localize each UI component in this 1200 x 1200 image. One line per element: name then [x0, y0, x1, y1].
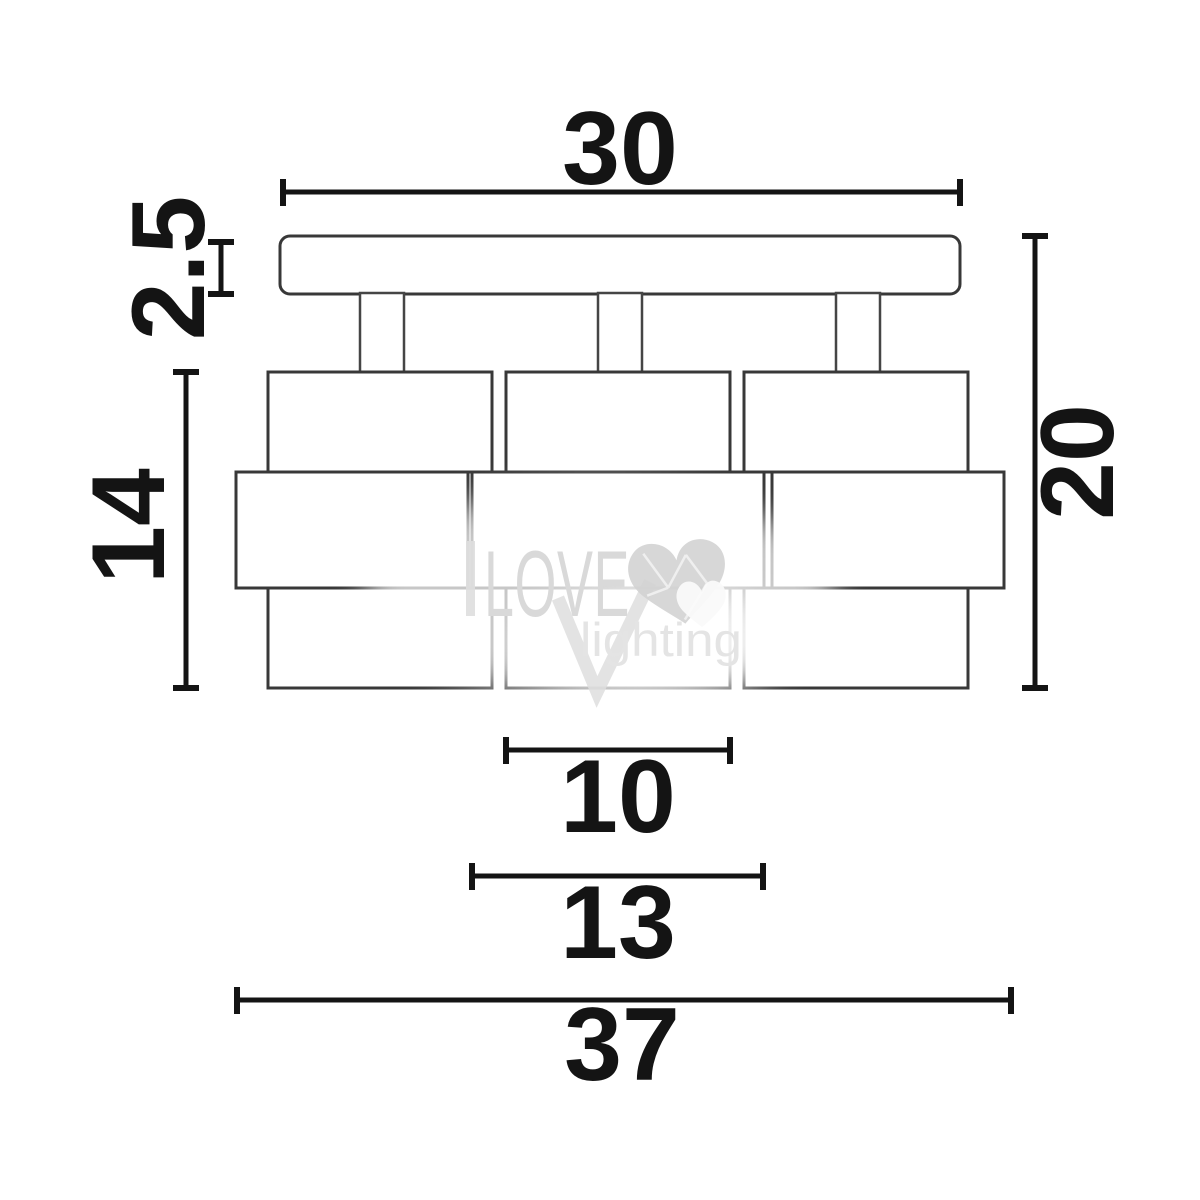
dim-label-shade-height: 14: [71, 468, 187, 584]
dim-label-fixture-height: 20: [1020, 404, 1136, 520]
logo-bar: [466, 541, 475, 616]
dim-label-shade-band-width: 13: [560, 865, 676, 981]
ceiling-lamp-dimension-drawing: LOVE lighting 30 2.5: [0, 0, 1200, 1200]
shade-left-top: [268, 372, 492, 472]
stem-left: [360, 293, 404, 373]
dim-plate-width: 30: [283, 91, 960, 207]
dim-fixture-width: 37: [237, 987, 1011, 1103]
watermark: LOVE lighting: [365, 487, 835, 697]
dim-fixture-height: 20: [1020, 236, 1136, 688]
dimension-drawing-page: LOVE lighting 30 2.5: [0, 0, 1200, 1200]
shade-center-top: [506, 372, 730, 472]
stem-right: [836, 293, 880, 373]
dim-label-shade-top-width: 10: [560, 739, 676, 855]
dim-label-fixture-width: 37: [564, 987, 680, 1103]
dim-label-plate-thickness: 2.5: [111, 196, 227, 341]
watermark-tagline-text: lighting: [580, 613, 742, 666]
ceiling-plate: [280, 236, 960, 294]
dim-shade-top-width: 10: [506, 737, 730, 855]
dim-shade-band-width: 13: [472, 863, 763, 981]
dim-plate-thickness: 2.5: [111, 196, 234, 341]
dim-label-plate-width: 30: [562, 91, 678, 207]
shade-right-top: [744, 372, 968, 472]
stem-center: [598, 293, 642, 373]
dim-shade-height: 14: [71, 372, 199, 688]
